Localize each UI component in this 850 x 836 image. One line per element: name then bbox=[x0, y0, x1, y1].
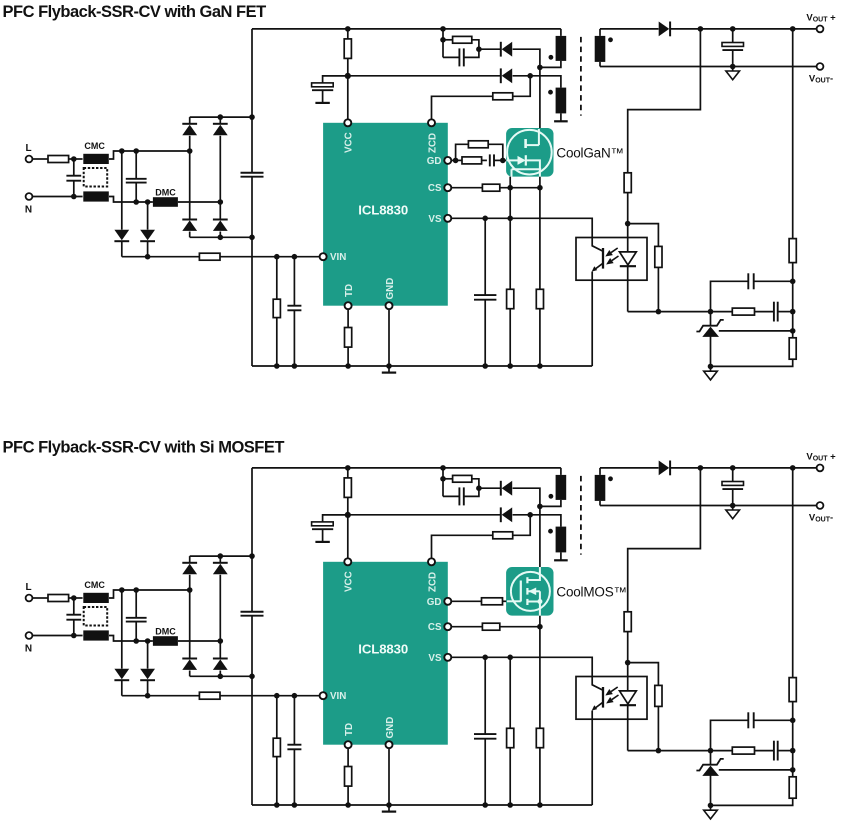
svg-text:CS: CS bbox=[428, 183, 442, 194]
svg-text:CMC: CMC bbox=[84, 141, 105, 151]
svg-text:ZCD: ZCD bbox=[427, 133, 438, 153]
svg-text:ZCD: ZCD bbox=[427, 572, 438, 592]
svg-text:N: N bbox=[25, 205, 32, 216]
svg-text:CMC: CMC bbox=[84, 580, 105, 590]
svg-text:TD: TD bbox=[344, 284, 355, 297]
svg-text:VS: VS bbox=[428, 653, 442, 664]
svg-text:CS: CS bbox=[428, 622, 442, 633]
svg-text:GD: GD bbox=[427, 597, 442, 608]
svg-text:N: N bbox=[25, 644, 32, 655]
svg-text:CoolMOS™: CoolMOS™ bbox=[556, 585, 626, 600]
svg-text:L: L bbox=[25, 143, 31, 154]
svg-text:PFC Flyback-SSR-CV with Si MOS: PFC Flyback-SSR-CV with Si MOSFET bbox=[3, 439, 285, 457]
svg-text:DMC: DMC bbox=[155, 187, 176, 197]
svg-text:CoolGaN™: CoolGaN™ bbox=[556, 146, 623, 161]
svg-text:PFC Flyback-SSR-CV with GaN FE: PFC Flyback-SSR-CV with GaN FET bbox=[3, 3, 267, 21]
svg-text:TD: TD bbox=[344, 723, 355, 736]
svg-text:VCC: VCC bbox=[344, 132, 355, 153]
svg-text:VIN: VIN bbox=[330, 252, 346, 263]
svg-text:GND: GND bbox=[385, 717, 396, 739]
svg-text:ICL8830: ICL8830 bbox=[358, 641, 408, 656]
svg-text:VIN: VIN bbox=[330, 691, 346, 702]
svg-text:L: L bbox=[25, 582, 31, 593]
svg-text:GD: GD bbox=[427, 156, 442, 167]
svg-text:VCC: VCC bbox=[344, 571, 355, 592]
svg-text:VS: VS bbox=[428, 214, 442, 225]
svg-text:GND: GND bbox=[385, 278, 396, 300]
svg-text:DMC: DMC bbox=[155, 626, 176, 636]
svg-text:ICL8830: ICL8830 bbox=[358, 202, 408, 217]
